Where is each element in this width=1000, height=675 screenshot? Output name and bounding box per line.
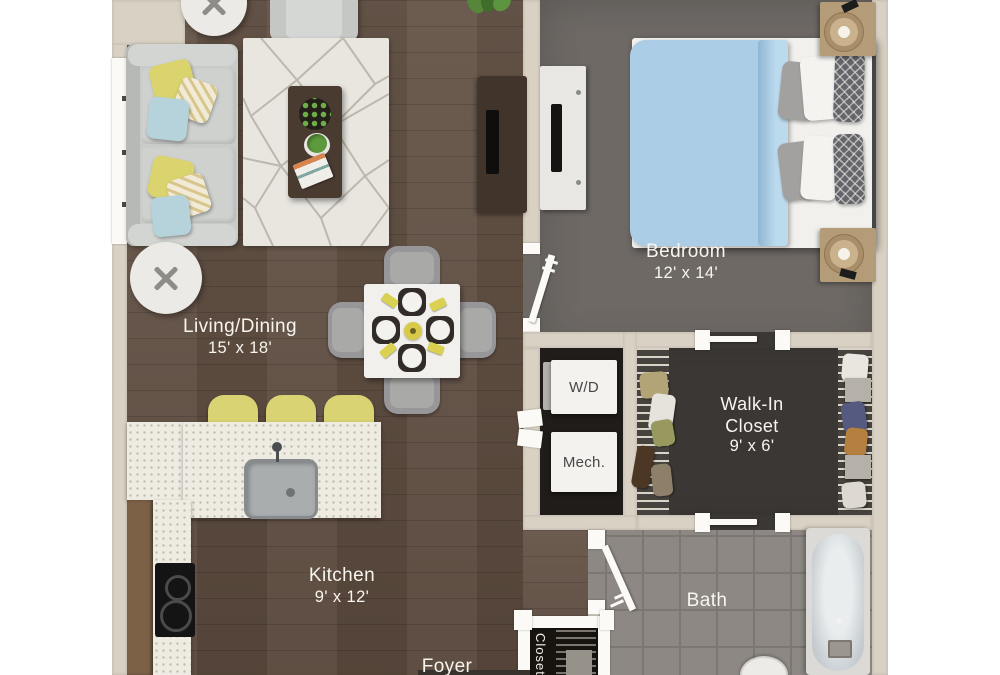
foyer-closet-corner-jamb xyxy=(600,610,614,630)
bedroom-bottom-wall xyxy=(788,332,872,348)
hanging-clothes xyxy=(650,463,673,497)
closet-sliding-door-top xyxy=(709,336,757,342)
table-plant-leaves xyxy=(307,134,327,153)
tv xyxy=(486,110,499,174)
laundry-bifold-door xyxy=(517,429,543,449)
hanging-clothes xyxy=(841,481,867,509)
dresser-tv xyxy=(551,104,562,172)
floor-plan: W/D Mech. Closet Living/Dining 15' x 18'… xyxy=(0,0,1000,675)
sofa-pillow-blue xyxy=(146,96,190,142)
walk-in-dimensions: 9' x 6' xyxy=(672,437,832,457)
bath-label: Bath xyxy=(647,590,767,613)
plate xyxy=(430,320,450,340)
dining-chair-cushion xyxy=(332,308,364,352)
sofa-pillow-blue xyxy=(150,194,192,238)
centerpiece-center xyxy=(410,328,416,334)
living-dining-dimensions: 15' x 18' xyxy=(150,339,330,359)
mechanical-label: Mech. xyxy=(563,454,605,471)
walk-in-closet-label: Walk-In Closet 9' x 6' xyxy=(672,394,832,457)
slider-jamb xyxy=(775,330,790,350)
bedroom-label: Bedroom 12' x 14' xyxy=(596,241,776,284)
slider-jamb xyxy=(775,513,790,532)
table-lamp xyxy=(824,12,864,52)
bedroom-name: Bedroom xyxy=(596,241,776,264)
tub-faucet xyxy=(828,640,852,658)
laundry-bottom-wall xyxy=(523,515,637,530)
storage-box xyxy=(845,378,871,402)
dresser-knob xyxy=(576,180,581,185)
foyer-closet-corner-jamb xyxy=(514,610,532,630)
dresser-knob xyxy=(576,90,581,95)
walk-in-line1: Walk-In xyxy=(672,394,832,416)
kitchen-label: Kitchen 9' x 12' xyxy=(252,565,432,608)
foyer-closet-label: Closet xyxy=(533,633,548,675)
laundry-walkin-divider-wall xyxy=(623,332,637,530)
storage-box xyxy=(845,455,871,479)
living-dining-name: Living/Dining xyxy=(150,316,330,339)
slider-jamb xyxy=(695,330,710,350)
stove-burner xyxy=(160,600,192,632)
bedroom-dresser xyxy=(540,66,586,210)
stove-burner xyxy=(165,575,191,601)
dining-chair-cushion xyxy=(460,308,492,352)
top-left-wall-block xyxy=(112,0,185,45)
walk-in-line2: Closet xyxy=(672,416,832,438)
armchair-cushion xyxy=(286,0,342,38)
plate xyxy=(402,348,422,368)
kitchen-name: Kitchen xyxy=(252,565,432,588)
kitchen-base-cabinet xyxy=(127,500,153,675)
closet-sliding-door-bottom xyxy=(709,519,757,525)
hanging-clothes xyxy=(844,427,869,457)
plate xyxy=(402,292,422,312)
dining-chair-cushion xyxy=(390,376,434,408)
laundry-bifold-door xyxy=(517,409,543,429)
washer-dryer-label: W/D xyxy=(569,379,599,396)
sink-drain xyxy=(286,488,295,497)
door-jamb xyxy=(523,243,540,254)
foyer-label: Foyer xyxy=(387,656,507,675)
walkin-bottom-wall xyxy=(637,515,697,530)
dining-chair-cushion xyxy=(390,252,434,284)
decor-bowl xyxy=(299,98,331,130)
mechanical-unit: Mech. xyxy=(551,432,617,492)
kitchen-dimensions: 9' x 12' xyxy=(252,588,432,608)
washer-dryer-unit: W/D xyxy=(551,360,617,414)
island-sink xyxy=(244,459,318,519)
slider-jamb xyxy=(695,513,710,532)
faucet-stem xyxy=(276,450,279,462)
tub-drain xyxy=(836,618,842,624)
living-dining-label: Living/Dining 15' x 18' xyxy=(150,316,330,359)
plate xyxy=(376,320,396,340)
bed-pillow-patterned xyxy=(833,133,865,204)
kitchen-counter-corner xyxy=(127,422,185,500)
foyer-closet-bin xyxy=(566,650,592,675)
sofa-back xyxy=(126,44,140,246)
bedroom-bottom-wall xyxy=(523,332,697,348)
bed-pillow-patterned xyxy=(833,51,865,122)
bedroom-dimensions: 12' x 14' xyxy=(596,264,776,284)
